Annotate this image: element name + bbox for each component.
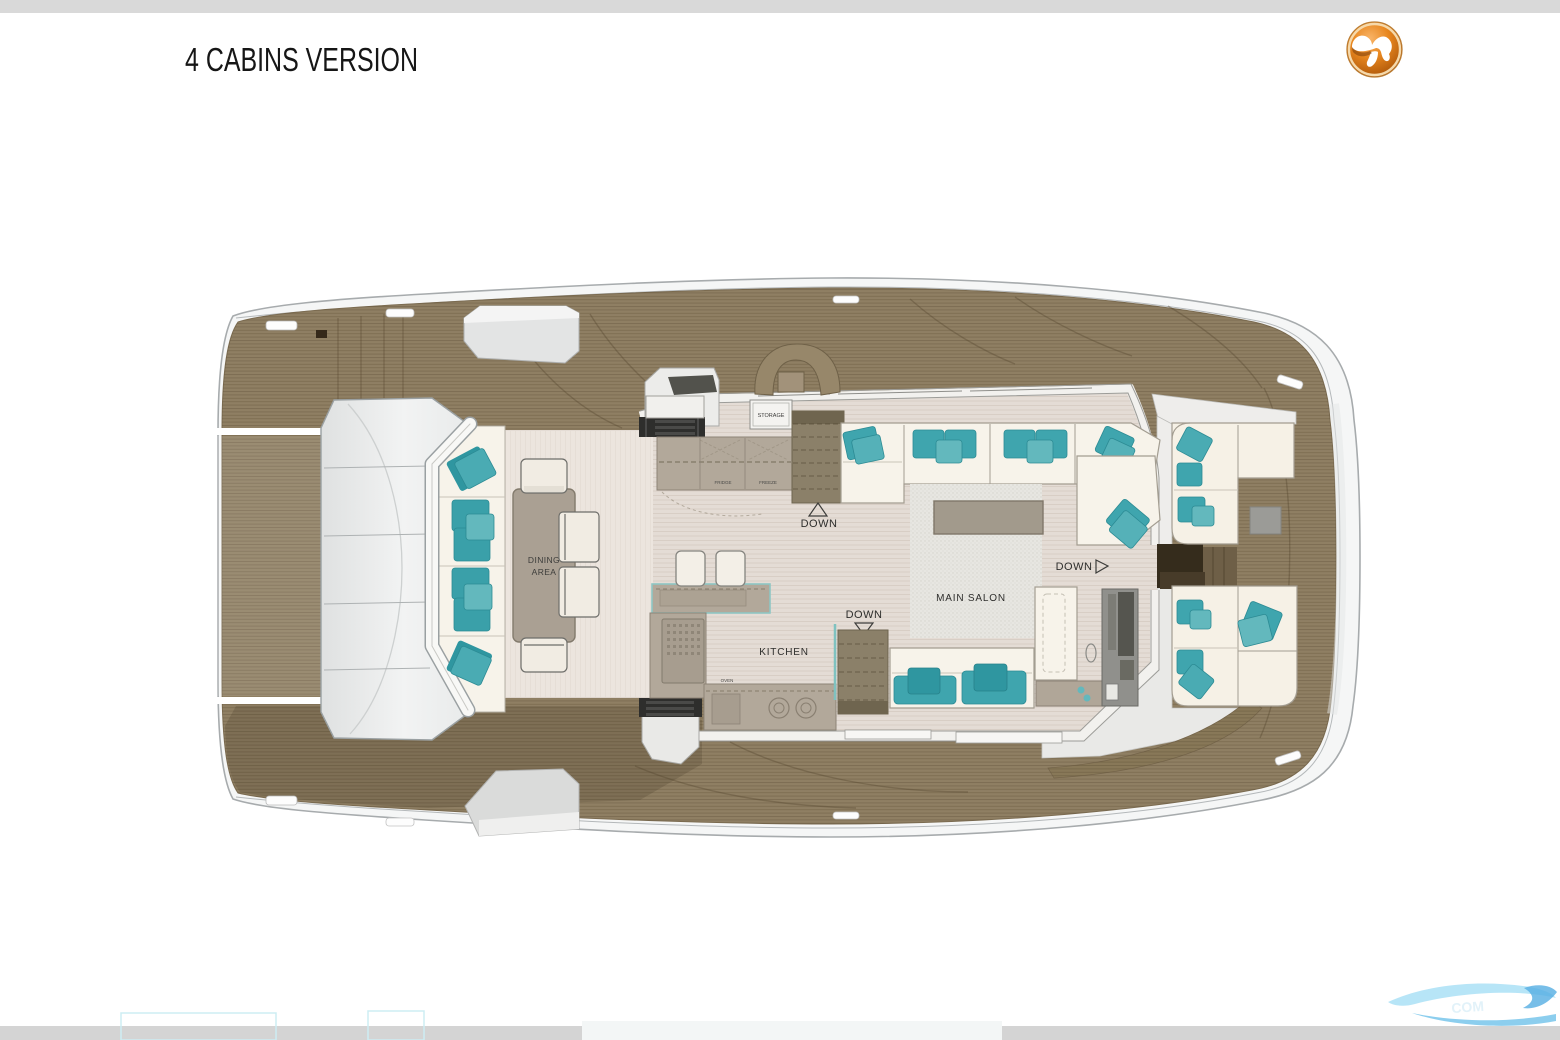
svg-text:OVEN: OVEN [721,678,734,683]
svg-text:DOWN: DOWN [1056,561,1093,573]
svg-text:AREA: AREA [532,567,557,577]
svg-text:KITCHEN: KITCHEN [759,647,809,658]
svg-text:MAIN SALON: MAIN SALON [936,593,1006,604]
svg-text:STORAGE: STORAGE [758,413,785,419]
svg-text:DINING: DINING [528,555,560,565]
svg-text:FREEZE: FREEZE [759,480,777,485]
svg-text:DOWN: DOWN [801,518,838,530]
svg-text:DOWN: DOWN [846,609,883,621]
svg-text:4 CABINS VERSION: 4 CABINS VERSION [185,41,418,78]
svg-text:COM: COM [1451,998,1485,1016]
svg-text:FRIDGE: FRIDGE [714,480,731,485]
